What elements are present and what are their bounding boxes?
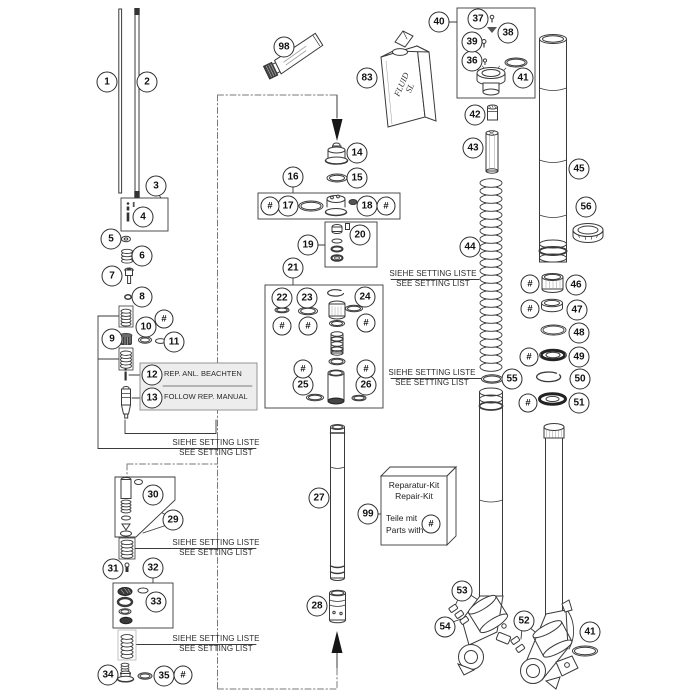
callout-20-19[interactable]: 20 <box>350 225 371 246</box>
callout-6-5[interactable]: 6 <box>132 246 153 267</box>
callout-15-14[interactable]: 15 <box>347 168 368 189</box>
callout-36-35[interactable]: 36 <box>462 51 483 72</box>
callout-46-45[interactable]: 46 <box>566 275 587 296</box>
callout-42-41[interactable]: 42 <box>465 105 486 126</box>
hash-callout-13[interactable]: # <box>422 515 441 534</box>
callout-8-7[interactable]: 8 <box>132 287 153 308</box>
callout-35-34[interactable]: 35 <box>154 666 175 687</box>
callout-37-36[interactable]: 37 <box>468 9 489 30</box>
callout-1-0[interactable]: 1 <box>97 72 118 93</box>
callout-56-55[interactable]: 56 <box>576 197 597 218</box>
callout-38-37[interactable]: 38 <box>498 23 519 44</box>
hash-callout-12[interactable]: # <box>174 666 193 685</box>
callout-2-1[interactable]: 2 <box>137 72 158 93</box>
callout-31-30[interactable]: 31 <box>103 559 124 580</box>
callout-98-57[interactable]: 98 <box>274 37 295 58</box>
callout-44-43[interactable]: 44 <box>460 237 481 258</box>
hash-callout-0[interactable]: # <box>155 310 174 329</box>
callout-45-44[interactable]: 45 <box>569 159 590 180</box>
callout-53-52[interactable]: 53 <box>452 581 473 602</box>
hash-callout-4[interactable]: # <box>299 317 318 336</box>
hash-callout-8[interactable]: # <box>521 275 540 294</box>
callout-12-11[interactable]: 12 <box>142 365 163 386</box>
callout-23-22[interactable]: 23 <box>297 288 318 309</box>
callout-99-58[interactable]: 99 <box>358 504 379 525</box>
callout-30-29[interactable]: 30 <box>143 485 164 506</box>
callout-48-47[interactable]: 48 <box>569 323 590 344</box>
callout-52-51[interactable]: 52 <box>514 611 535 632</box>
callout-7-6[interactable]: 7 <box>102 266 123 287</box>
diagram-canvas: FLUID SL <box>0 0 700 700</box>
callout-51-50[interactable]: 51 <box>569 393 590 414</box>
callout-29-28[interactable]: 29 <box>163 510 184 531</box>
hash-callout-6[interactable]: # <box>294 360 313 379</box>
callout-83-56[interactable]: 83 <box>357 68 378 89</box>
callout-39-38[interactable]: 39 <box>462 32 483 53</box>
callout-43-42[interactable]: 43 <box>463 138 484 159</box>
callout-17-16[interactable]: 17 <box>278 196 299 217</box>
callout-54-53[interactable]: 54 <box>435 617 456 638</box>
callout-10-9[interactable]: 10 <box>136 317 157 338</box>
callout-28-27[interactable]: 28 <box>307 596 328 617</box>
hash-callout-1[interactable]: # <box>261 197 280 216</box>
hash-callout-3[interactable]: # <box>273 317 292 336</box>
callout-50-49[interactable]: 50 <box>570 369 591 390</box>
callout-22-21[interactable]: 22 <box>272 288 293 309</box>
hash-callout-10[interactable]: # <box>520 348 539 367</box>
callout-32-31[interactable]: 32 <box>143 558 164 579</box>
callout-24-23[interactable]: 24 <box>355 287 376 308</box>
callout-49-48[interactable]: 49 <box>569 347 590 368</box>
callout-55-54[interactable]: 55 <box>502 369 523 390</box>
callout-layer: 1234567891011121314151617181920212223242… <box>0 0 700 700</box>
callout-4-3[interactable]: 4 <box>133 207 154 228</box>
hash-callout-11[interactable]: # <box>519 394 538 413</box>
callout-13-12[interactable]: 13 <box>142 388 163 409</box>
callout-9-8[interactable]: 9 <box>102 329 123 350</box>
callout-14-13[interactable]: 14 <box>347 143 368 164</box>
callout-47-46[interactable]: 47 <box>567 300 588 321</box>
callout-3-2[interactable]: 3 <box>146 176 167 197</box>
hash-callout-2[interactable]: # <box>377 197 396 216</box>
callout-16-15[interactable]: 16 <box>283 167 304 188</box>
callout-18-17[interactable]: 18 <box>357 196 378 217</box>
callout-5-4[interactable]: 5 <box>101 229 122 250</box>
callout-33-32[interactable]: 33 <box>146 592 167 613</box>
hash-callout-7[interactable]: # <box>357 360 376 379</box>
callout-40-39[interactable]: 40 <box>429 12 450 33</box>
callout-41-59[interactable]: 41 <box>580 622 601 643</box>
callout-34-33[interactable]: 34 <box>98 665 119 686</box>
callout-19-18[interactable]: 19 <box>298 235 319 256</box>
callout-41-40[interactable]: 41 <box>513 68 534 89</box>
hash-callout-9[interactable]: # <box>521 300 540 319</box>
callout-11-10[interactable]: 11 <box>164 332 185 353</box>
callout-21-20[interactable]: 21 <box>283 258 304 279</box>
callout-27-26[interactable]: 27 <box>309 488 330 509</box>
hash-callout-5[interactable]: # <box>357 314 376 333</box>
